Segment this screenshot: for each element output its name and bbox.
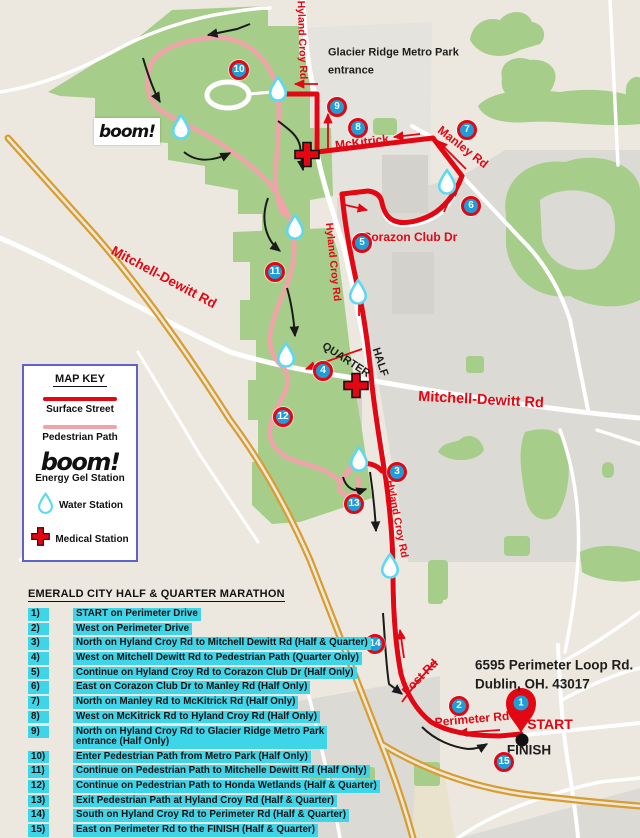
start-pin: [506, 688, 536, 733]
direction-number: 8): [28, 711, 49, 724]
direction-number: 2): [28, 623, 49, 636]
directions-panel: EMERALD CITY HALF & QUARTER MARATHON 1)S…: [28, 584, 438, 838]
direction-item: 2)West on Perimeter Drive: [28, 623, 438, 636]
direction-number: 14): [28, 809, 49, 822]
direction-text: Continue on Pedestrian Path to Mitchelle…: [73, 765, 370, 778]
direction-text: North on Hyland Croy Rd to Glacier Ridge…: [73, 726, 327, 749]
direction-number: 3): [28, 637, 49, 650]
direction-number: 9): [28, 726, 49, 739]
direction-number: 5): [28, 667, 49, 680]
direction-text: North on Hyland Croy Rd to Mitchell Dewi…: [73, 637, 371, 650]
direction-text: West on Mitchell Dewitt Rd to Pedestrian…: [73, 652, 362, 665]
direction-number: 1): [28, 608, 49, 621]
marathon-route-map: boom! Hyland Croy RdGlacier Ridge Metro …: [0, 0, 640, 838]
directions-title: EMERALD CITY HALF & QUARTER MARATHON: [28, 588, 285, 602]
direction-number: 10): [28, 751, 49, 764]
direction-text: Exit Pedestrian Path at Hyland Croy Rd (…: [73, 795, 337, 808]
direction-number: 15): [28, 824, 49, 837]
surface-street-label: Surface Street: [46, 404, 114, 415]
boom-energy-gel-map-logo: boom!: [94, 118, 160, 145]
direction-item: 13)Exit Pedestrian Path at Hyland Croy R…: [28, 795, 438, 808]
direction-number: 11): [28, 765, 49, 778]
direction-text: Continue on Hyland Croy Rd to Corazon Cl…: [73, 667, 357, 680]
direction-number: 13): [28, 795, 49, 808]
direction-text: West on Perimeter Drive: [73, 623, 192, 636]
direction-number: 4): [28, 652, 49, 665]
direction-item: 8)West on McKitrick Rd to Hyland Croy Rd…: [28, 711, 438, 724]
map-key-title: MAP KEY: [53, 373, 107, 387]
boom-logo-key: boom!: [41, 451, 120, 473]
direction-text: North on Manley Rd to McKitrick Rd (Half…: [73, 696, 298, 709]
direction-item: 7)North on Manley Rd to McKitrick Rd (Ha…: [28, 696, 438, 709]
direction-item: 11)Continue on Pedestrian Path to Mitche…: [28, 765, 438, 778]
boom-logo-text: boom!: [99, 122, 155, 142]
directions-list: 1)START on Perimeter Drive2)West on Peri…: [28, 608, 438, 837]
direction-text: Enter Pedestrian Path from Metro Park (H…: [73, 751, 311, 764]
direction-text: West on McKitrick Rd to Hyland Croy Rd (…: [73, 711, 320, 724]
direction-text: START on Perimeter Drive: [73, 608, 201, 621]
water-station-label: Water Station: [59, 500, 123, 511]
water-station-icon: [37, 492, 54, 519]
direction-text: Continue on Pedestrian Path to Honda Wet…: [73, 780, 380, 793]
direction-item: 10)Enter Pedestrian Path from Metro Park…: [28, 751, 438, 764]
direction-item: 9)North on Hyland Croy Rd to Glacier Rid…: [28, 726, 438, 749]
medical-station-label: Medical Station: [55, 534, 128, 545]
surface-street-swatch: [43, 397, 117, 401]
direction-text: East on Corazon Club Dr to Manley Rd (Ha…: [73, 681, 310, 694]
direction-number: 6): [28, 681, 49, 694]
pedestrian-path-swatch: [43, 425, 117, 429]
direction-text: South on Hyland Croy Rd to Perimeter Rd …: [73, 809, 349, 822]
direction-item: 3)North on Hyland Croy Rd to Mitchell De…: [28, 637, 438, 650]
direction-text: East on Perimeter Rd to the FINISH (Half…: [73, 824, 318, 837]
map-key-panel: MAP KEY Surface Street Pedestrian Path b…: [22, 364, 138, 562]
direction-item: 6)East on Corazon Club Dr to Manley Rd (…: [28, 681, 438, 694]
direction-item: 1)START on Perimeter Drive: [28, 608, 438, 621]
direction-item: 4)West on Mitchell Dewitt Rd to Pedestri…: [28, 652, 438, 665]
direction-number: 7): [28, 696, 49, 709]
energy-gel-label: Energy Gel Station: [35, 473, 124, 484]
direction-item: 5)Continue on Hyland Croy Rd to Corazon …: [28, 667, 438, 680]
finish-dot: [516, 734, 529, 747]
direction-item: 12)Continue on Pedestrian Path to Honda …: [28, 780, 438, 793]
direction-number: 12): [28, 780, 49, 793]
direction-item: 15)East on Perimeter Rd to the FINISH (H…: [28, 824, 438, 837]
medical-station-icon: [31, 527, 50, 551]
direction-item: 14)South on Hyland Croy Rd to Perimeter …: [28, 809, 438, 822]
pedestrian-path-label: Pedestrian Path: [42, 432, 118, 443]
